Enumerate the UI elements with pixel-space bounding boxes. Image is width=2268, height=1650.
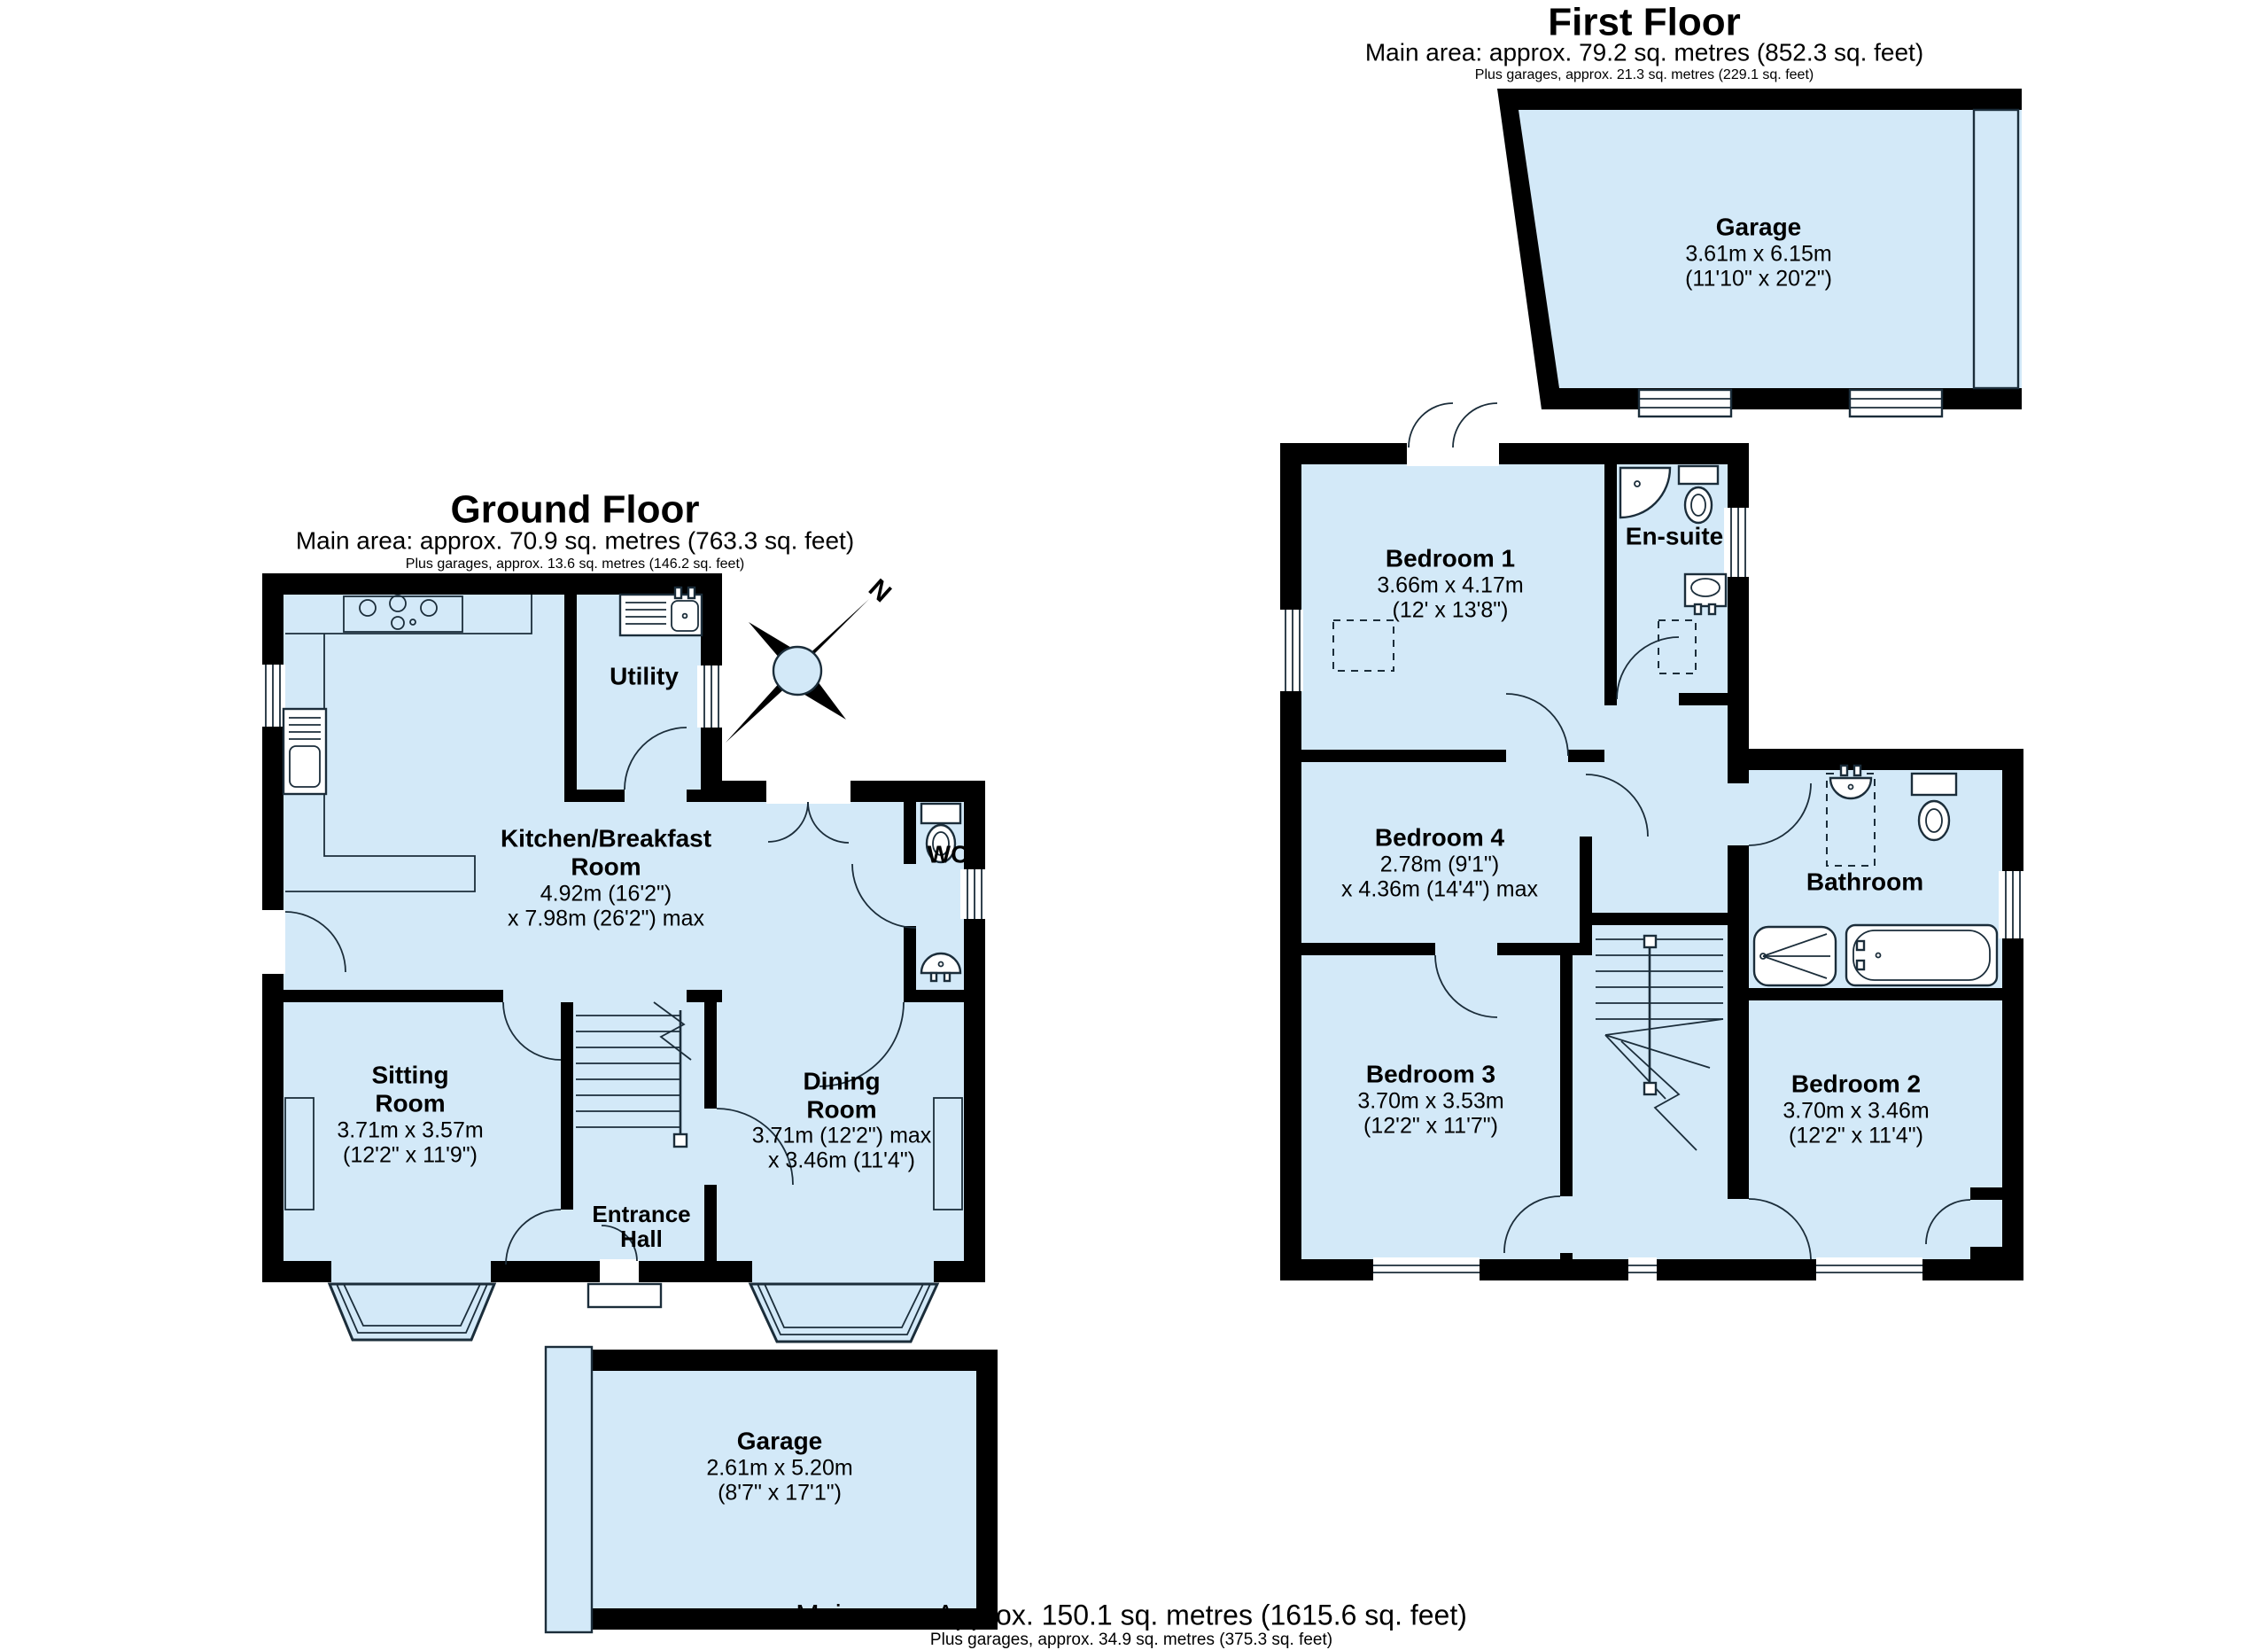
label-bedroom4-dim2: x 4.36m (14'4") max [1341,877,1539,902]
ground-floor-plan: Ground Floor Main area: approx. 70.9 sq.… [259,488,987,1342]
compass-north-label: N [863,573,897,608]
label-garage-g: Garage [737,1427,823,1454]
label-bedroom4: Bedroom 4 [1375,823,1505,851]
compass-rose: N [726,573,897,743]
first-floor-area: Main area: approx. 79.2 sq. metres (852.… [1365,38,1923,66]
label-sitting-dim1: 3.71m x 3.57m [337,1118,483,1143]
kitchen-sink [283,709,326,794]
bath-icon [1846,925,1997,985]
label-kitchen-2: Room [571,852,641,880]
first-floor-garage-note: Plus garages, approx. 21.3 sq. metres (2… [1475,67,1814,82]
ground-floor-garage-note: Plus garages, approx. 13.6 sq. metres (1… [406,556,744,572]
footer-area: Main area: Approx. 150.1 sq. metres (161… [796,1599,1467,1631]
ground-floor-area: Main area: approx. 70.9 sq. metres (763.… [296,526,854,554]
utility-sink [620,588,702,635]
label-sitting-1: Sitting [371,1061,448,1088]
label-dining-dim1: 3.71m (12'2") max [752,1124,932,1148]
floorplan-page: Ground Floor Main area: approx. 70.9 sq.… [0,0,2268,1650]
label-bedroom1: Bedroom 1 [1386,544,1515,572]
label-dining-dim2: x 3.46m (11'4") [768,1148,915,1173]
ground-floor-garage: Garage 2.61m x 5.20m (8'7" x 17'1") [546,1347,998,1632]
footer-summary: Main area: Approx. 150.1 sq. metres (161… [796,1599,1467,1649]
label-bedroom3-dim1: 3.70m x 3.53m [1357,1089,1503,1114]
label-bedroom2: Bedroom 2 [1791,1070,1921,1097]
label-bathroom: Bathroom [1806,868,1923,895]
label-bedroom1-dim2: (12' x 13'8") [1393,598,1509,623]
label-garage-g-dim2: (8'7" x 17'1") [718,1481,842,1506]
label-entrance-1: Entrance [592,1201,690,1227]
ground-floor-title: Ground Floor [450,488,699,532]
porch-step [588,1284,661,1307]
label-bedroom3-dim2: (12'2" x 11'7") [1363,1114,1498,1139]
footer-garage-note: Plus garages, approx. 34.9 sq. metres (3… [930,1631,1332,1649]
label-bedroom4-dim1: 2.78m (9'1") [1380,852,1500,877]
label-garage-f-dim2: (11'10" x 20'2") [1685,267,1832,292]
label-utility: Utility [610,662,679,689]
label-bedroom3: Bedroom 3 [1366,1060,1495,1087]
label-wc: WC [928,840,969,868]
label-ensuite: En-suite [1626,522,1723,549]
label-kitchen-dim1: 4.92m (16'2") [540,882,672,907]
ensuite-toilet-icon [1679,466,1718,484]
label-garage-f: Garage [1716,213,1802,240]
label-kitchen-1: Kitchen/Breakfast [501,824,711,852]
label-bedroom2-dim2: (12'2" x 11'4") [1789,1124,1923,1148]
label-sitting-dim2: (12'2" x 11'9") [343,1143,478,1168]
floorplan-svg: Ground Floor Main area: approx. 70.9 sq.… [0,0,2268,1650]
label-dining-1: Dining [803,1067,880,1094]
first-floor-plan: First Floor Main area: approx. 79.2 sq. … [1278,1,2025,1282]
label-entrance-2: Hall [620,1226,663,1252]
label-garage-f-dim1: 3.61m x 6.15m [1685,242,1831,267]
label-garage-g-dim1: 2.61m x 5.20m [706,1456,852,1481]
garage-door-strip [1974,110,2018,388]
label-bedroom2-dim1: 3.70m x 3.46m [1783,1099,1929,1124]
label-dining-2: Room [806,1095,876,1123]
label-kitchen-dim2: x 7.98m (26'2") max [508,907,705,931]
label-sitting-2: Room [375,1089,445,1117]
bathroom-toilet-icon [1912,774,1956,795]
first-floor-garage: Garage 3.61m x 6.15m (11'10" x 20'2") [1497,89,2022,416]
garage-door [546,1347,592,1632]
label-bedroom1-dim1: 3.66m x 4.17m [1377,573,1523,598]
first-floor-title: First Floor [1548,1,1741,44]
